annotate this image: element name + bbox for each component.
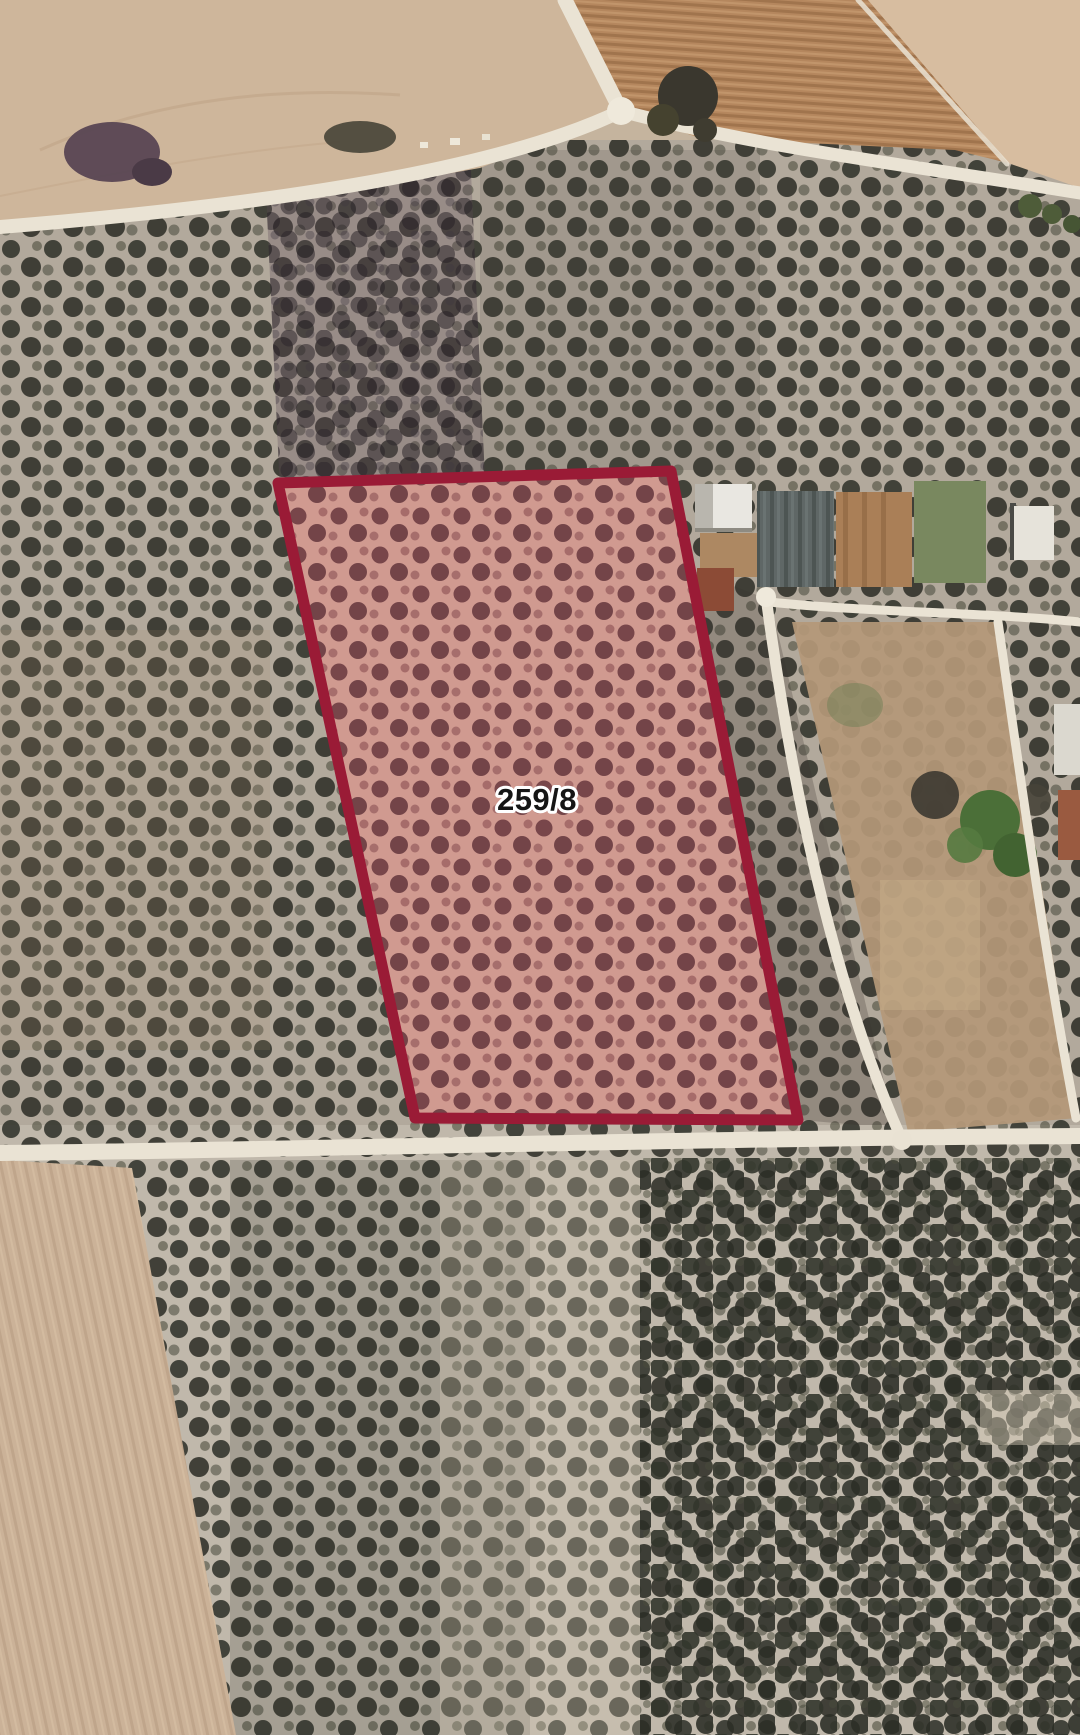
satellite-imagery[interactable]: 259/8 — [0, 0, 1080, 1735]
orchard-zone-dark — [480, 150, 760, 470]
grove-light-strip — [440, 1160, 640, 1735]
green-trees-roadside — [1018, 194, 1042, 218]
parcel-label: 259/8 — [497, 782, 577, 817]
building-white-3 — [1054, 704, 1080, 775]
building-rust-2 — [1058, 790, 1080, 860]
orchard-zone-warm — [0, 630, 270, 1050]
building-white-2 — [1014, 506, 1054, 560]
map-viewport[interactable]: 259/8 — [0, 0, 1080, 1735]
tree-clump — [911, 771, 959, 819]
plot-green — [914, 481, 986, 583]
grove-dense-right — [640, 1158, 1080, 1735]
tree-clump-dark — [324, 121, 396, 153]
